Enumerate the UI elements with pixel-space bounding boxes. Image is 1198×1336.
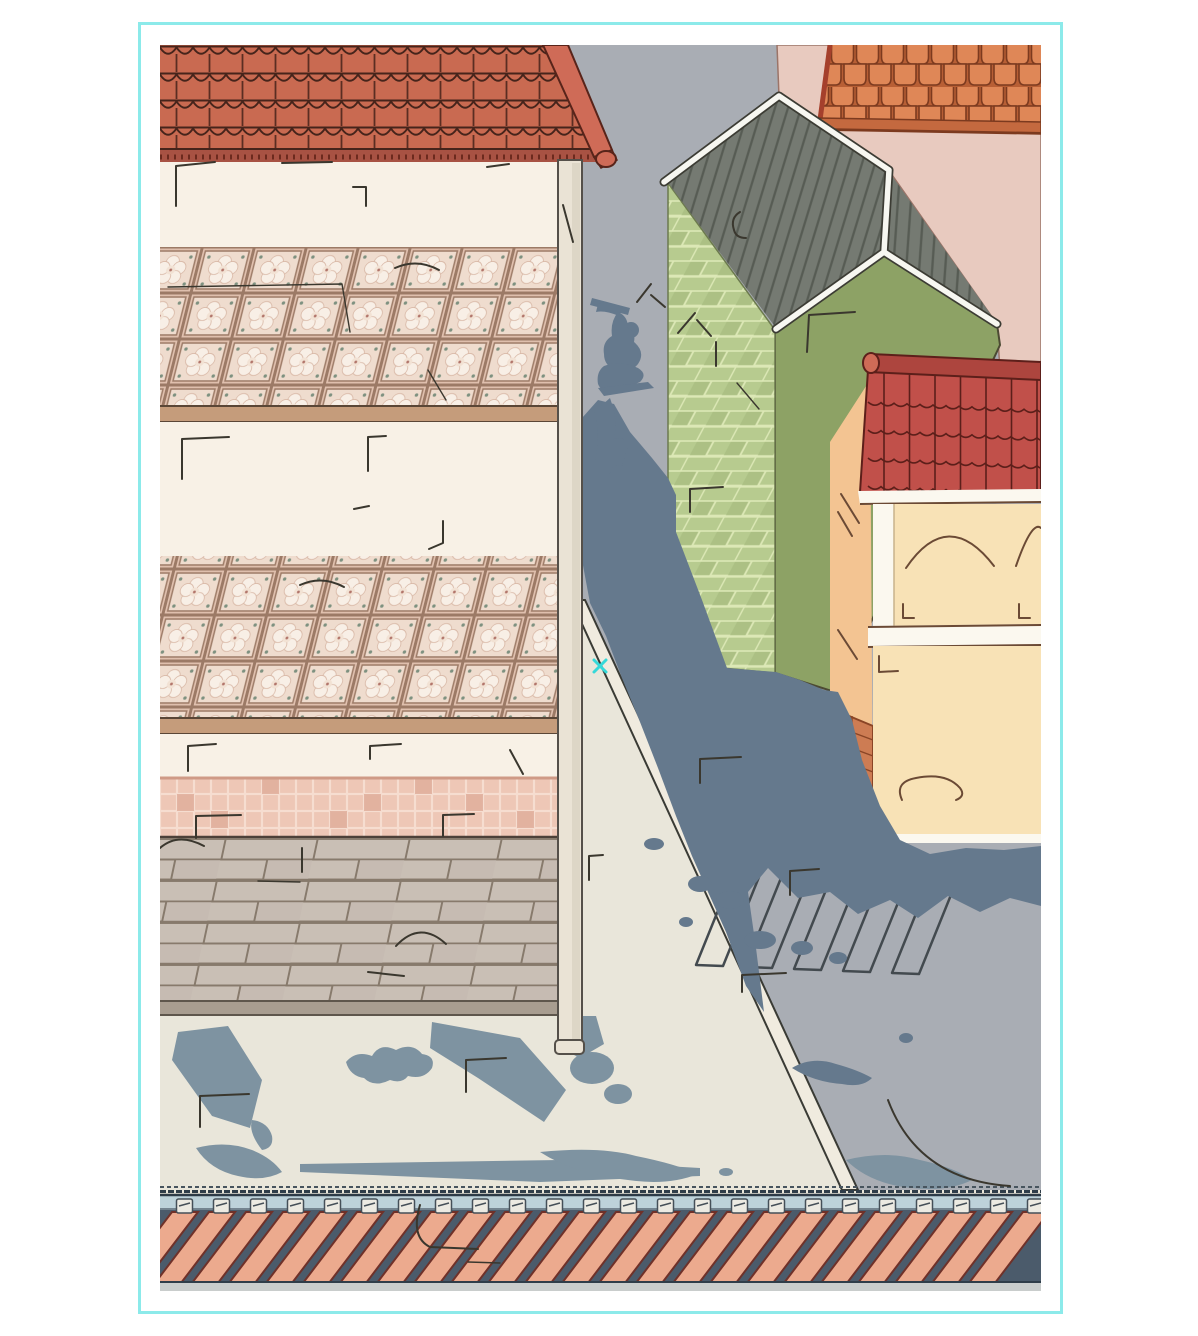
wainscot-dark-tile bbox=[177, 794, 194, 811]
track-bottom-strip bbox=[160, 1282, 1041, 1291]
rail-clip bbox=[843, 1199, 859, 1213]
wainscot-dark-tile bbox=[211, 811, 228, 828]
ridge-end-cap bbox=[863, 353, 879, 373]
rail-clip bbox=[732, 1199, 748, 1213]
shadow-blob bbox=[688, 876, 712, 892]
rail-clip bbox=[288, 1199, 304, 1213]
pen-mark bbox=[258, 881, 300, 882]
wainscot-dark-tile bbox=[466, 794, 483, 811]
shadow-blob bbox=[679, 917, 693, 927]
pen-mark bbox=[468, 1262, 500, 1263]
shadow-blob bbox=[791, 941, 813, 955]
artwork bbox=[118, 45, 1050, 1291]
wainscot-dark-tile bbox=[415, 777, 432, 794]
shadow-blob bbox=[604, 1084, 632, 1104]
rail-clip bbox=[547, 1199, 563, 1213]
red-tile-roof bbox=[860, 370, 1041, 492]
column-foot bbox=[555, 1040, 584, 1054]
rail-clip bbox=[880, 1199, 896, 1213]
rail-clip bbox=[621, 1199, 637, 1213]
shadow-blob bbox=[644, 838, 664, 850]
rail-clip bbox=[325, 1199, 341, 1213]
rail-clip bbox=[991, 1199, 1007, 1213]
shadow-blob bbox=[899, 1033, 913, 1043]
rail-clip bbox=[658, 1199, 674, 1213]
cutaway-building bbox=[160, 45, 617, 1054]
shadow-blob bbox=[744, 931, 776, 949]
shadow-blob bbox=[570, 1052, 614, 1084]
corner-pillar bbox=[873, 504, 894, 630]
scalloped-roof bbox=[160, 45, 598, 150]
rail-clip bbox=[177, 1199, 193, 1213]
pen-mark bbox=[282, 162, 332, 163]
tile-floor-lower bbox=[160, 556, 558, 720]
rail-clip bbox=[251, 1199, 267, 1213]
floor-edge-band bbox=[160, 1001, 558, 1015]
illustration-page bbox=[0, 0, 1198, 1336]
upper-floor-wall bbox=[873, 504, 1041, 630]
rail-clip bbox=[917, 1199, 933, 1213]
rail-clip bbox=[473, 1199, 489, 1213]
rail-clip bbox=[806, 1199, 822, 1213]
shadow-blob bbox=[829, 952, 847, 964]
wainscot-dark-tile bbox=[364, 794, 381, 811]
lower-floor-wall bbox=[873, 646, 1041, 838]
shingle-roof bbox=[820, 45, 1041, 124]
wainscot-dark-tile bbox=[330, 811, 347, 828]
brick-floor bbox=[160, 838, 558, 1001]
wall-level-4 bbox=[160, 162, 558, 247]
shadow-blob bbox=[719, 1168, 733, 1176]
rail-clip bbox=[954, 1199, 970, 1213]
column-shading bbox=[572, 163, 580, 1043]
beam-end-cap bbox=[596, 151, 616, 167]
rail-clip bbox=[399, 1199, 415, 1213]
rail-clip bbox=[362, 1199, 378, 1213]
scene-canvas bbox=[0, 0, 1198, 1336]
rail-clip bbox=[769, 1199, 785, 1213]
wall-ground bbox=[160, 734, 558, 777]
railway bbox=[118, 1187, 1049, 1291]
tile-floor-upper bbox=[160, 247, 558, 408]
wainscot-dark-tile bbox=[517, 811, 534, 828]
slab-edge-lower bbox=[160, 718, 558, 734]
slab-edge-upper bbox=[160, 406, 558, 422]
wall-level-3 bbox=[160, 422, 558, 556]
rail-clip bbox=[584, 1199, 600, 1213]
rail-clip bbox=[510, 1199, 526, 1213]
wainscot-dark-tile bbox=[262, 777, 279, 794]
rail-clip bbox=[695, 1199, 711, 1213]
shadow-blob bbox=[716, 891, 744, 909]
rail-clip bbox=[214, 1199, 230, 1213]
rail-clip bbox=[436, 1199, 452, 1213]
